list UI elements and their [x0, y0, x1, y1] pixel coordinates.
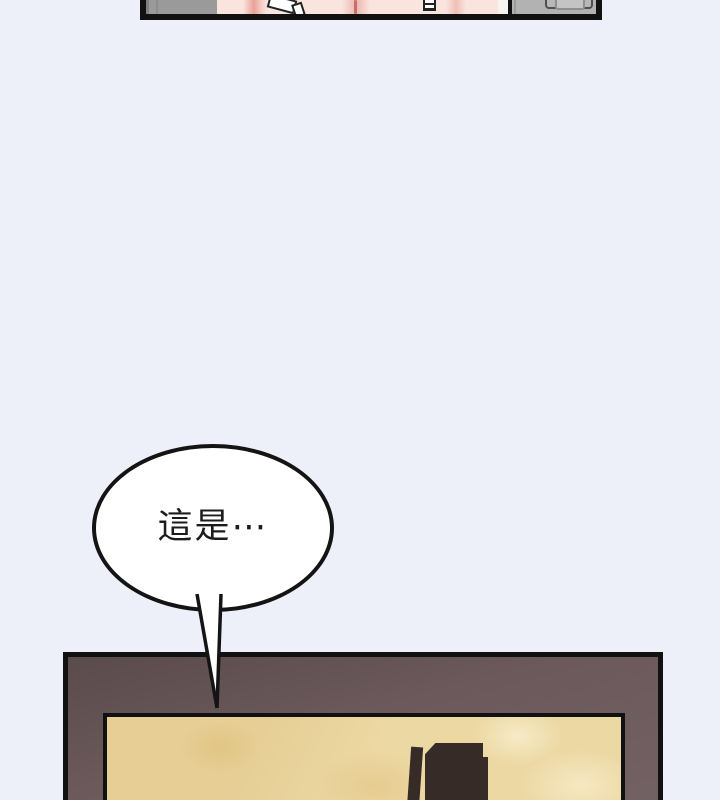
- dark-object-left-strip: [407, 747, 423, 800]
- dark-object-body: [425, 743, 483, 800]
- skin-edge-highlight: [498, 0, 508, 14]
- gray-furniture-left: [146, 0, 217, 14]
- strap-rung: [425, 8, 434, 10]
- tan-surface: [103, 713, 625, 800]
- speech-bubble-text: 這是⋯: [157, 509, 268, 544]
- speech-bubble: 這是⋯: [92, 444, 334, 612]
- strap-rung: [425, 3, 434, 5]
- skin-shadow-right: [446, 0, 466, 14]
- strap-right: [423, 0, 436, 11]
- skin-crease-line: [354, 0, 357, 14]
- top-comic-panel: [140, 0, 602, 20]
- speech-bubble-tail: [180, 594, 240, 714]
- drawer-handle-inset: [555, 0, 585, 10]
- skin-shadow-left: [243, 0, 267, 14]
- comic-page: 這是⋯: [0, 0, 720, 800]
- dark-object-right-sliver: [483, 757, 488, 800]
- bottom-comic-panel: [63, 652, 663, 800]
